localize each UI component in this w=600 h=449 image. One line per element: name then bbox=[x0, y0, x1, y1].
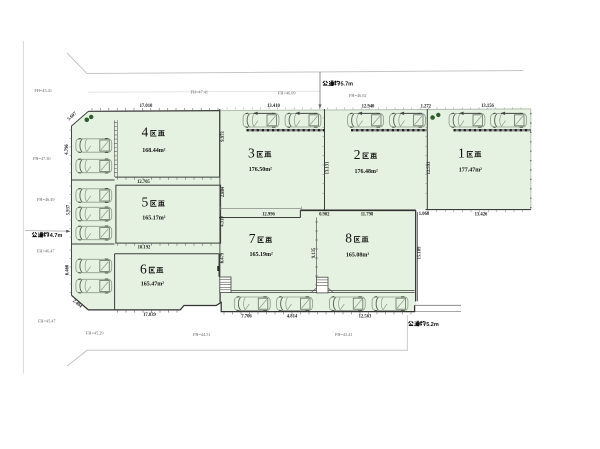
svg-text:FH=46.49: FH=46.49 bbox=[37, 197, 55, 202]
svg-text:13.426: 13.426 bbox=[475, 212, 488, 217]
svg-text:1.272: 1.272 bbox=[421, 104, 432, 109]
svg-text:5.2m: 5.2m bbox=[426, 322, 439, 328]
svg-text:15.189: 15.189 bbox=[417, 246, 422, 259]
svg-text:2: 2 bbox=[354, 147, 361, 162]
svg-text:13.156: 13.156 bbox=[481, 104, 494, 109]
svg-text:FH=44.51: FH=44.51 bbox=[193, 332, 211, 337]
svg-text:0.902: 0.902 bbox=[319, 212, 330, 217]
svg-text:168.44m²: 168.44m² bbox=[142, 148, 165, 154]
svg-text:6: 6 bbox=[140, 261, 147, 276]
svg-text:165.17m²: 165.17m² bbox=[142, 215, 165, 221]
svg-text:1: 1 bbox=[458, 146, 465, 161]
svg-text:3: 3 bbox=[248, 146, 255, 161]
svg-text:176.50m²: 176.50m² bbox=[249, 167, 272, 173]
svg-text:9.973: 9.973 bbox=[221, 131, 226, 142]
svg-text:7.706: 7.706 bbox=[241, 314, 252, 319]
svg-text:13.131: 13.131 bbox=[326, 161, 331, 174]
svg-text:4: 4 bbox=[142, 125, 149, 140]
svg-text:12.940: 12.940 bbox=[362, 105, 375, 110]
svg-text:12.705: 12.705 bbox=[137, 180, 150, 185]
svg-text:FH=43.41: FH=43.41 bbox=[335, 332, 353, 337]
svg-text:5.7m: 5.7m bbox=[341, 82, 354, 88]
svg-text:FH=47.41: FH=47.41 bbox=[191, 90, 209, 95]
svg-text:FH=46.09: FH=46.09 bbox=[278, 91, 296, 96]
svg-text:5: 5 bbox=[142, 195, 149, 210]
svg-text:8: 8 bbox=[345, 231, 352, 246]
svg-text:10.192: 10.192 bbox=[138, 245, 151, 250]
svg-text:9.135: 9.135 bbox=[312, 247, 317, 258]
svg-text:176.48m²: 176.48m² bbox=[355, 169, 378, 175]
svg-text:5.937: 5.937 bbox=[67, 204, 72, 215]
svg-text:12.996: 12.996 bbox=[262, 213, 275, 218]
svg-text:4.814: 4.814 bbox=[287, 314, 298, 319]
svg-text:165.19m²: 165.19m² bbox=[250, 252, 273, 258]
svg-text:4.7m: 4.7m bbox=[50, 233, 63, 239]
svg-text:FH=45.41: FH=45.41 bbox=[34, 88, 52, 93]
svg-text:2.884: 2.884 bbox=[221, 186, 226, 197]
svg-text:17.039: 17.039 bbox=[143, 313, 156, 318]
svg-text:4.796: 4.796 bbox=[65, 144, 70, 155]
svg-text:165.08m²: 165.08m² bbox=[346, 253, 369, 259]
svg-text:FH=46.47: FH=46.47 bbox=[37, 249, 55, 254]
svg-text:FH=47.30: FH=47.30 bbox=[33, 156, 51, 161]
svg-text:FH=45.47: FH=45.47 bbox=[38, 318, 56, 323]
svg-text:4.319: 4.319 bbox=[221, 216, 226, 227]
svg-text:17.010: 17.010 bbox=[140, 104, 153, 109]
svg-text:165.47m²: 165.47m² bbox=[141, 282, 164, 288]
svg-text:12.593: 12.593 bbox=[427, 161, 432, 174]
svg-text:FH=45.29: FH=45.29 bbox=[86, 330, 104, 335]
svg-text:13.410: 13.410 bbox=[267, 104, 280, 109]
svg-text:6.460: 6.460 bbox=[65, 264, 70, 275]
svg-text:7: 7 bbox=[249, 231, 256, 246]
svg-text:6.479: 6.479 bbox=[221, 252, 226, 263]
svg-text:FH=46.02: FH=46.02 bbox=[349, 93, 367, 98]
svg-text:177.47m²: 177.47m² bbox=[459, 167, 482, 173]
svg-text:11.798: 11.798 bbox=[361, 213, 374, 218]
svg-text:12.563: 12.563 bbox=[359, 314, 372, 319]
svg-text:1.060: 1.060 bbox=[419, 212, 430, 217]
